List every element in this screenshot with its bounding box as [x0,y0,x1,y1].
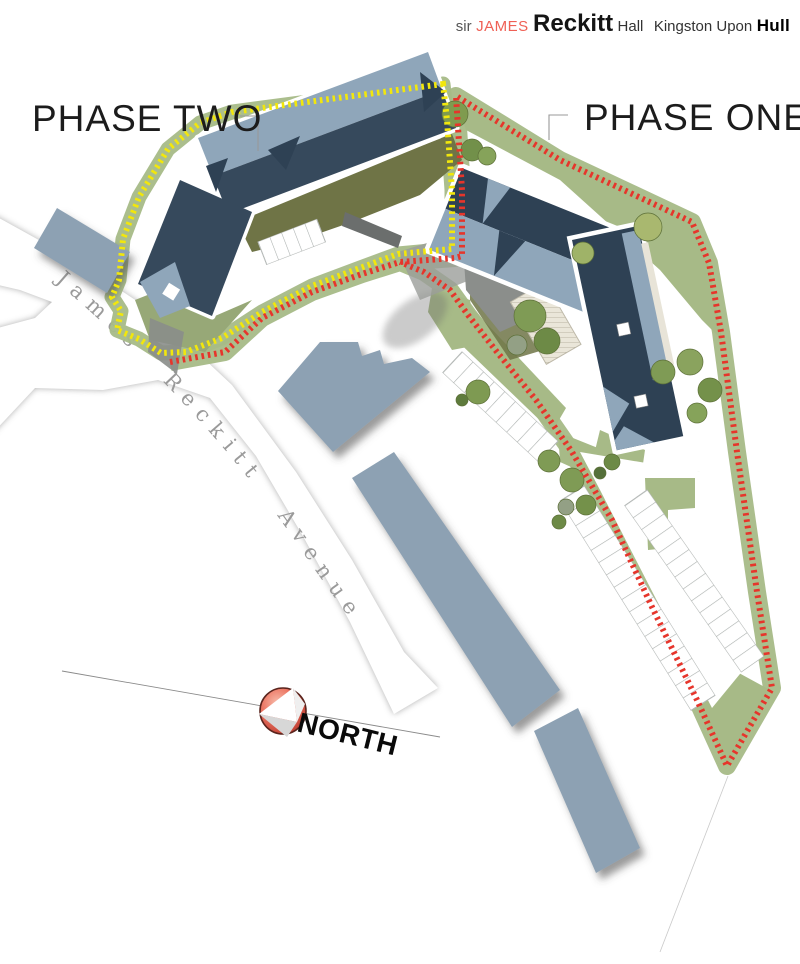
existing-building-middle [278,342,430,452]
phase-one-leader [549,115,568,140]
rooflight [634,394,648,408]
boundary-leader-line [660,776,728,952]
north-label: NORTH [295,707,402,762]
page-header: sir JAMES Reckitt Hall Kingston Upon Hul… [456,10,790,38]
header-first-name: JAMES [476,18,529,35]
courtyard-wall [342,212,402,248]
rooflight [617,322,631,336]
header-city-bold: Hull [757,16,790,35]
header-surname: Reckitt [533,10,613,37]
existing-building-long-lower [534,708,640,873]
phase-two-label: PHASE TWO [32,98,262,139]
header-prefix: sir [456,18,472,35]
site-plan-page: James Reckitt Avenue [0,0,800,964]
header-city: Kingston Upon [654,18,752,35]
site-plan-drawing: James Reckitt Avenue [0,0,800,964]
phase-one-label: PHASE ONE [584,97,800,138]
header-suffix: Hall [618,18,644,35]
